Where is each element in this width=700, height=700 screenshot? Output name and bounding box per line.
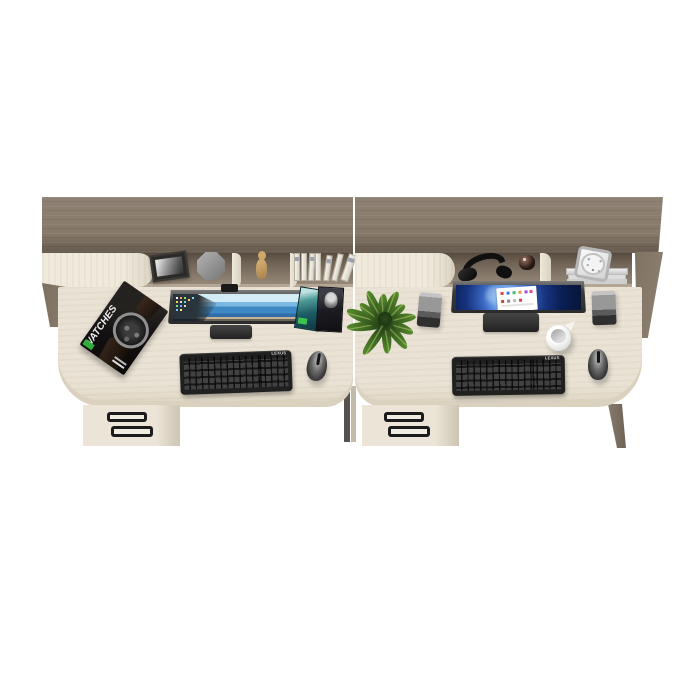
hutch-flap-door (355, 253, 455, 287)
speaker (591, 291, 616, 326)
monitor-stand (483, 313, 539, 332)
drawer-unit (362, 405, 459, 446)
monitor (451, 281, 586, 313)
monitor-screen (456, 285, 581, 310)
drawer-handle (388, 426, 430, 437)
desk-right: LEXUS (0, 0, 700, 700)
headphone-cup (457, 266, 479, 283)
jug-spout (565, 321, 575, 331)
document-window (496, 286, 538, 310)
potted-plant (350, 286, 422, 356)
drawer-handle (384, 412, 424, 422)
hutch-top-panel (355, 197, 663, 253)
speaker (417, 292, 443, 328)
magazine-stack (566, 252, 628, 286)
small-jar (519, 255, 535, 270)
desk-clock (573, 245, 612, 282)
mouse (588, 349, 608, 380)
product-render: WATCHES LEXUS (0, 0, 700, 700)
headphone-cup (494, 264, 513, 281)
keyboard-logo: LEXUS (545, 356, 560, 360)
headphones (456, 252, 516, 286)
milk-jug (545, 321, 575, 353)
desk-leg (606, 404, 626, 448)
keyboard: LEXUS (452, 355, 566, 396)
